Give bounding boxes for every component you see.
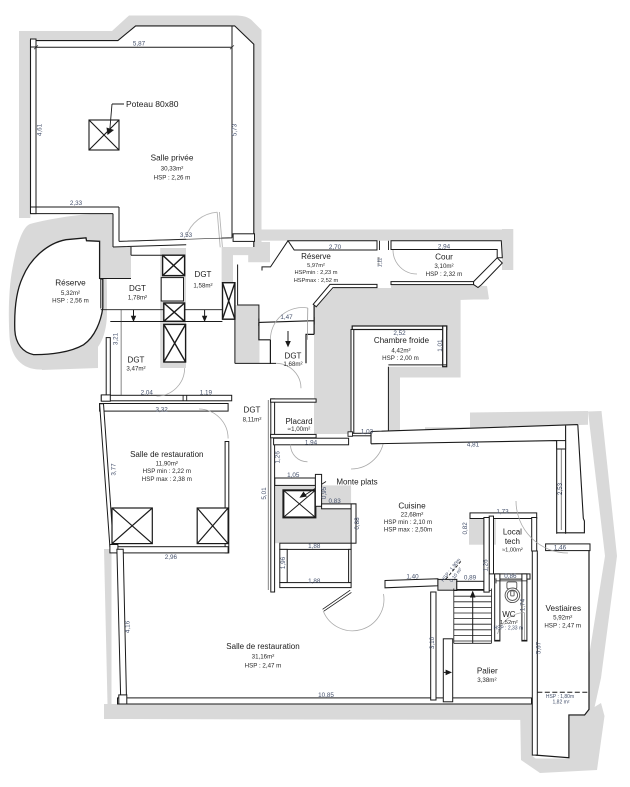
svg-text:Palier: Palier bbox=[477, 667, 498, 676]
svg-text:4,81: 4,81 bbox=[467, 442, 480, 449]
svg-text:Réserve: Réserve bbox=[55, 279, 86, 288]
svg-text:HSPmax : 2,52 m: HSPmax : 2,52 m bbox=[294, 278, 339, 284]
svg-text:5,92m²: 5,92m² bbox=[553, 615, 572, 622]
svg-text:1,94: 1,94 bbox=[305, 439, 318, 446]
svg-text:2,52: 2,52 bbox=[393, 330, 406, 337]
svg-text:2,04: 2,04 bbox=[141, 389, 154, 396]
svg-text:Salle de restauration: Salle de restauration bbox=[130, 450, 203, 459]
svg-text:≈1,00m²: ≈1,00m² bbox=[288, 426, 311, 433]
svg-text:1,26: 1,26 bbox=[275, 451, 282, 464]
svg-text:1,01: 1,01 bbox=[437, 339, 444, 352]
svg-text:22,68m²: 22,68m² bbox=[401, 512, 424, 519]
svg-text:1,05: 1,05 bbox=[287, 472, 300, 479]
svg-text:2,94: 2,94 bbox=[438, 244, 451, 251]
svg-text:≈1,00m²: ≈1,00m² bbox=[502, 548, 523, 554]
svg-text:8,11m²: 8,11m² bbox=[243, 417, 262, 424]
svg-text:1,88: 1,88 bbox=[308, 543, 321, 550]
svg-text:HSP max : 2,38 m: HSP max : 2,38 m bbox=[142, 476, 192, 483]
svg-text:1,58m²: 1,58m² bbox=[193, 283, 212, 290]
svg-text:Chambre froide: Chambre froide bbox=[374, 336, 430, 345]
svg-text:5,87: 5,87 bbox=[133, 40, 146, 47]
svg-text:1,96: 1,96 bbox=[280, 556, 287, 569]
svg-text:Poteau 80x80: Poteau 80x80 bbox=[126, 99, 179, 109]
svg-text:DGT: DGT bbox=[244, 406, 261, 415]
svg-text:1,19: 1,19 bbox=[200, 389, 213, 396]
svg-text:HSP : 2,26 m: HSP : 2,26 m bbox=[154, 175, 191, 182]
svg-text:3,21: 3,21 bbox=[113, 332, 120, 345]
svg-text:3,10m²: 3,10m² bbox=[434, 263, 453, 270]
svg-text:5,01: 5,01 bbox=[261, 487, 268, 500]
svg-text:Vestiaires: Vestiaires bbox=[546, 604, 582, 613]
svg-text:DGT: DGT bbox=[128, 356, 145, 365]
svg-text:4,61: 4,61 bbox=[37, 123, 44, 136]
svg-text:HSP : 2,32 m: HSP : 2,32 m bbox=[426, 271, 463, 278]
svg-text:1,78m²: 1,78m² bbox=[128, 295, 147, 302]
svg-text:2,53: 2,53 bbox=[557, 482, 564, 495]
svg-text:0,95: 0,95 bbox=[321, 486, 328, 499]
svg-text:0,88: 0,88 bbox=[354, 517, 361, 530]
svg-text:Cour: Cour bbox=[435, 253, 453, 262]
svg-text:Monte plats: Monte plats bbox=[336, 478, 377, 487]
svg-text:5,67: 5,67 bbox=[536, 641, 543, 654]
svg-text:5,73: 5,73 bbox=[232, 123, 239, 136]
svg-text:HSPmin : 2,23 m: HSPmin : 2,23 m bbox=[295, 270, 338, 276]
svg-text:0,86: 0,86 bbox=[504, 573, 517, 580]
svg-text:3,47m²: 3,47m² bbox=[126, 366, 145, 373]
svg-text:2,70: 2,70 bbox=[329, 244, 342, 251]
svg-text:1,47: 1,47 bbox=[280, 314, 293, 321]
svg-text:3,10: 3,10 bbox=[429, 636, 436, 649]
svg-text:3,38m²: 3,38m² bbox=[477, 677, 496, 684]
svg-text:Cuisine: Cuisine bbox=[398, 501, 426, 510]
svg-text:Salle de restauration: Salle de restauration bbox=[226, 642, 299, 651]
svg-text:4,42m²: 4,42m² bbox=[391, 348, 410, 355]
svg-text:HSP min : 2,10 m: HSP min : 2,10 m bbox=[384, 519, 432, 526]
svg-text:3,77: 3,77 bbox=[111, 463, 118, 476]
svg-text:10,85: 10,85 bbox=[318, 692, 334, 699]
svg-text:Salle privée: Salle privée bbox=[151, 154, 194, 163]
svg-text:31,16m²: 31,16m² bbox=[252, 654, 275, 661]
svg-text:Réserve: Réserve bbox=[301, 252, 331, 261]
svg-text:DGT: DGT bbox=[129, 284, 146, 293]
svg-text:HSP : 2,56 m: HSP : 2,56 m bbox=[52, 298, 89, 305]
svg-text:1,82 m²: 1,82 m² bbox=[553, 700, 570, 706]
svg-text:1,26: 1,26 bbox=[483, 559, 490, 572]
svg-text:0,82: 0,82 bbox=[462, 522, 469, 535]
svg-text:3,53: 3,53 bbox=[180, 232, 193, 239]
svg-text:tech: tech bbox=[505, 537, 520, 546]
svg-text:HSP max : 2,50m: HSP max : 2,50m bbox=[384, 527, 432, 534]
svg-text:0,83: 0,83 bbox=[328, 498, 341, 505]
svg-text:1,88: 1,88 bbox=[308, 578, 321, 585]
svg-text:1,68m²: 1,68m² bbox=[283, 361, 302, 368]
svg-text:Placard: Placard bbox=[285, 417, 312, 426]
svg-text:5,32m²: 5,32m² bbox=[61, 290, 80, 297]
svg-text:11,90m²: 11,90m² bbox=[156, 461, 178, 468]
svg-text:2,96: 2,96 bbox=[165, 554, 178, 561]
svg-text:5,97m²: 5,97m² bbox=[307, 263, 325, 269]
svg-text:HSP : 2,47 m: HSP : 2,47 m bbox=[544, 623, 581, 630]
svg-text:3,32: 3,32 bbox=[155, 406, 168, 413]
svg-text:HSP : 2,47 m: HSP : 2,47 m bbox=[245, 663, 282, 670]
svg-text:0,89: 0,89 bbox=[464, 575, 477, 582]
svg-text:HSP min : 2,22 m: HSP min : 2,22 m bbox=[143, 468, 191, 475]
svg-text:2,33: 2,33 bbox=[70, 200, 83, 207]
svg-text:WC: WC bbox=[502, 610, 516, 619]
svg-text:1,03: 1,03 bbox=[361, 428, 374, 435]
svg-text:1,74: 1,74 bbox=[520, 598, 527, 611]
svg-text:1,73: 1,73 bbox=[496, 508, 509, 515]
svg-text:1,11: 1,11 bbox=[378, 258, 384, 268]
svg-text:HSP : 2,33 m: HSP : 2,33 m bbox=[493, 626, 523, 632]
svg-text:Local: Local bbox=[503, 528, 522, 537]
svg-text:DGT: DGT bbox=[285, 352, 302, 361]
svg-text:1,46: 1,46 bbox=[554, 544, 567, 551]
svg-text:4,16: 4,16 bbox=[125, 620, 132, 633]
svg-text:HSP : 2,00 m: HSP : 2,00 m bbox=[382, 355, 419, 362]
svg-text:30,33m²: 30,33m² bbox=[161, 166, 184, 173]
svg-text:DGT: DGT bbox=[195, 270, 212, 279]
svg-text:1,40: 1,40 bbox=[406, 573, 419, 580]
